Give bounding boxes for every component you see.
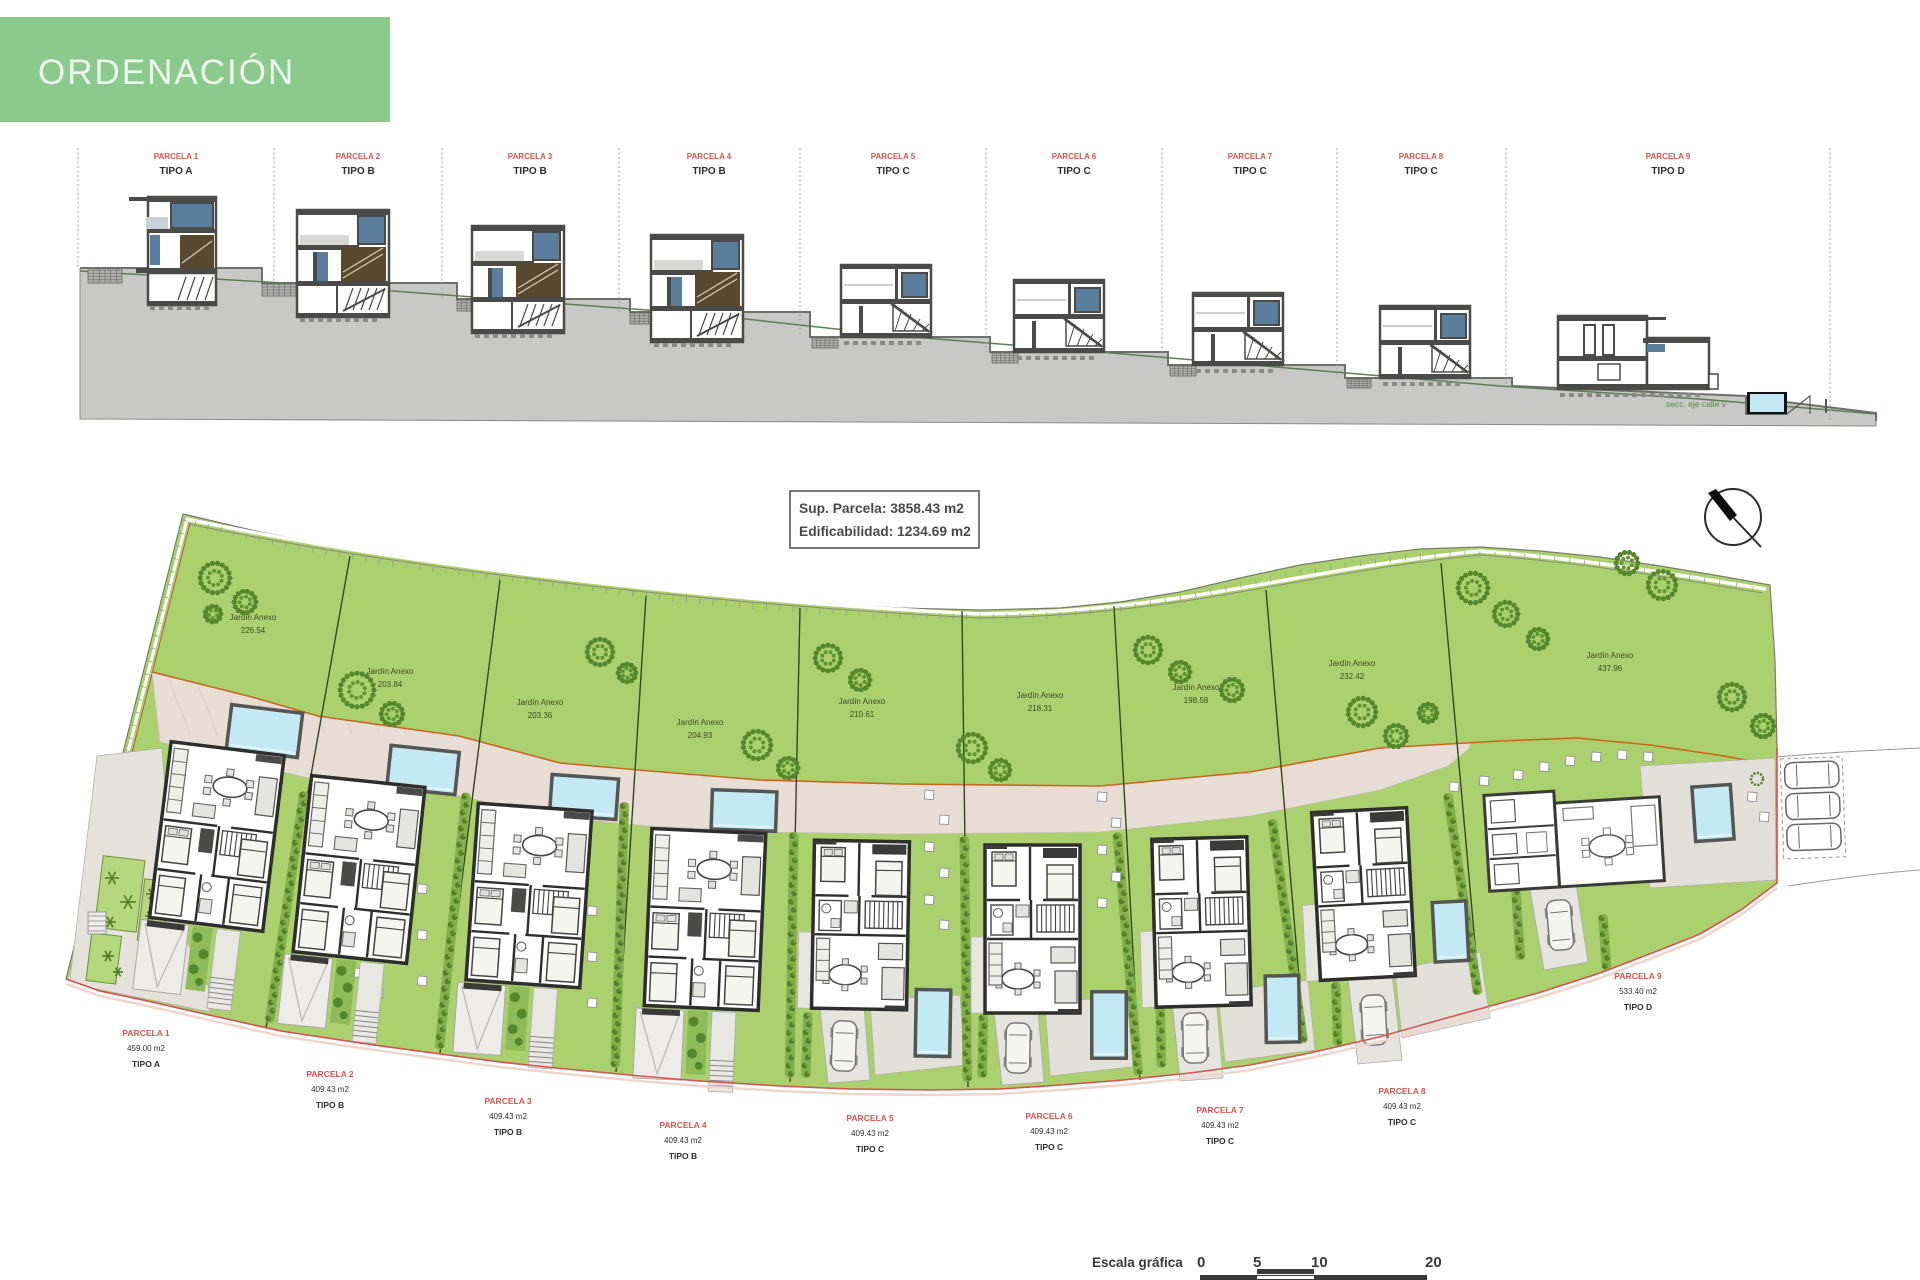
svg-text:TIPO B: TIPO B	[513, 166, 546, 177]
svg-text:409.43 m2: 409.43 m2	[851, 1129, 889, 1138]
svg-text:TIPO C: TIPO C	[1206, 1136, 1234, 1146]
svg-text:232.42: 232.42	[1340, 672, 1365, 681]
svg-text:Jardín Anexo: Jardín Anexo	[1017, 691, 1064, 700]
svg-text:409.43 m2: 409.43 m2	[311, 1085, 349, 1094]
svg-text:20: 20	[1425, 1254, 1442, 1271]
svg-text:TIPO A: TIPO A	[160, 166, 193, 177]
svg-text:TIPO C: TIPO C	[1057, 166, 1090, 177]
svg-text:TIPO B: TIPO B	[692, 166, 725, 177]
svg-text:PARCELA 5: PARCELA 5	[871, 152, 916, 161]
svg-text:PARCELA 4: PARCELA 4	[659, 1120, 707, 1130]
svg-text:533.40 m2: 533.40 m2	[1619, 987, 1657, 996]
svg-text:TIPO A: TIPO A	[132, 1059, 160, 1069]
svg-text:226.54: 226.54	[241, 626, 266, 635]
svg-text:Jardín Anexo: Jardín Anexo	[517, 698, 564, 707]
svg-text:459.00 m2: 459.00 m2	[127, 1044, 165, 1053]
svg-text:TIPO D: TIPO D	[1624, 1002, 1652, 1012]
svg-text:PARCELA 1: PARCELA 1	[154, 152, 199, 161]
svg-text:204.93: 204.93	[688, 731, 713, 740]
svg-text:PARCELA 9: PARCELA 9	[1646, 152, 1691, 161]
svg-text:TIPO B: TIPO B	[669, 1151, 697, 1161]
svg-text:TIPO C: TIPO C	[1233, 166, 1266, 177]
svg-text:Escala gráfica: Escala gráfica	[1092, 1255, 1183, 1270]
svg-text:Jardín Anexo: Jardín Anexo	[367, 667, 414, 676]
svg-text:PARCELA 9: PARCELA 9	[1614, 971, 1662, 981]
svg-text:PARCELA 7: PARCELA 7	[1196, 1105, 1244, 1115]
svg-text:437.96: 437.96	[1598, 664, 1623, 673]
svg-text:10: 10	[1311, 1254, 1328, 1271]
svg-text:Edificabilidad: 1234.69 m2: Edificabilidad: 1234.69 m2	[799, 524, 971, 539]
svg-text:Jardín Anexo: Jardín Anexo	[1173, 683, 1220, 692]
svg-text:409.43 m2: 409.43 m2	[489, 1112, 527, 1121]
svg-text:TIPO C: TIPO C	[876, 166, 909, 177]
svg-text:secc. eje calle v: secc. eje calle v	[1666, 399, 1727, 409]
svg-text:PARCELA 6: PARCELA 6	[1025, 1111, 1073, 1121]
svg-text:198.58: 198.58	[1184, 696, 1209, 705]
svg-text:PARCELA 6: PARCELA 6	[1052, 152, 1097, 161]
svg-text:Jardín Anexo: Jardín Anexo	[1329, 659, 1376, 668]
svg-text:409.43 m2: 409.43 m2	[1383, 1102, 1421, 1111]
svg-text:Jardín Anexo: Jardín Anexo	[1587, 651, 1634, 660]
svg-text:Jardín Anexo: Jardín Anexo	[230, 613, 277, 622]
svg-text:PARCELA 5: PARCELA 5	[846, 1113, 894, 1123]
svg-text:TIPO C: TIPO C	[1404, 166, 1437, 177]
svg-text:409.43 m2: 409.43 m2	[1030, 1127, 1068, 1136]
svg-text:ORDENACIÓN: ORDENACIÓN	[38, 53, 295, 92]
svg-text:TIPO B: TIPO B	[316, 1100, 344, 1110]
svg-text:203.84: 203.84	[378, 680, 403, 689]
svg-text:TIPO C: TIPO C	[1388, 1117, 1416, 1127]
svg-text:PARCELA 7: PARCELA 7	[1228, 152, 1273, 161]
svg-text:409.43 m2: 409.43 m2	[664, 1136, 702, 1145]
svg-text:PARCELA 2: PARCELA 2	[336, 152, 381, 161]
svg-text:409.43 m2: 409.43 m2	[1201, 1121, 1239, 1130]
svg-text:210.61: 210.61	[850, 710, 875, 719]
svg-text:TIPO B: TIPO B	[341, 166, 374, 177]
svg-text:218.31: 218.31	[1028, 704, 1053, 713]
svg-text:TIPO B: TIPO B	[494, 1127, 522, 1137]
svg-text:203.36: 203.36	[528, 711, 553, 720]
svg-text:PARCELA 1: PARCELA 1	[122, 1028, 170, 1038]
svg-text:PARCELA 3: PARCELA 3	[484, 1096, 532, 1106]
svg-text:PARCELA 3: PARCELA 3	[508, 152, 553, 161]
svg-text:PARCELA 8: PARCELA 8	[1378, 1086, 1426, 1096]
svg-text:Sup. Parcela: 3858.43 m2: Sup. Parcela: 3858.43 m2	[799, 501, 964, 516]
svg-text:Jardín Anexo: Jardín Anexo	[839, 697, 886, 706]
svg-text:TIPO C: TIPO C	[1035, 1142, 1063, 1152]
svg-text:5: 5	[1253, 1254, 1261, 1271]
svg-text:0: 0	[1197, 1254, 1205, 1271]
svg-text:Jardín Anexo: Jardín Anexo	[677, 718, 724, 727]
svg-text:PARCELA 4: PARCELA 4	[687, 152, 732, 161]
svg-text:TIPO D: TIPO D	[1651, 166, 1684, 177]
svg-text:PARCELA 2: PARCELA 2	[306, 1069, 354, 1079]
svg-text:TIPO C: TIPO C	[856, 1144, 884, 1154]
svg-text:PARCELA 8: PARCELA 8	[1399, 152, 1444, 161]
